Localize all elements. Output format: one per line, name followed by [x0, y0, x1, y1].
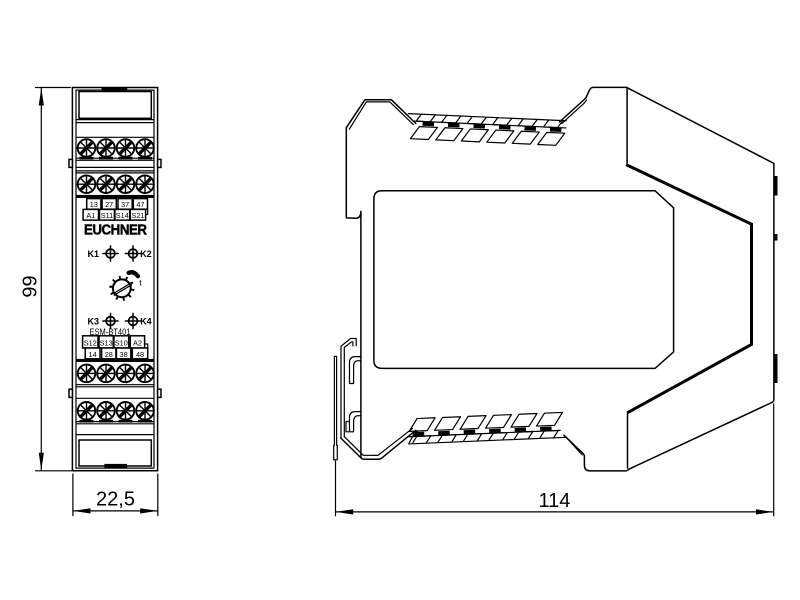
svg-text:S11: S11 [101, 211, 113, 220]
svg-text:S14: S14 [116, 211, 129, 220]
svg-text:99: 99 [19, 275, 41, 297]
svg-text:47: 47 [136, 200, 144, 209]
svg-text:S10: S10 [115, 338, 128, 347]
svg-text:37: 37 [121, 200, 129, 209]
svg-text:K1: K1 [88, 249, 100, 259]
svg-text:EUCHNER: EUCHNER [84, 223, 147, 239]
svg-text:S13: S13 [100, 338, 113, 347]
svg-text:K4: K4 [140, 316, 152, 326]
svg-text:48: 48 [136, 350, 144, 359]
svg-text:K2: K2 [140, 249, 152, 259]
svg-text:114: 114 [539, 490, 571, 512]
svg-text:22,5: 22,5 [96, 489, 135, 511]
svg-text:38: 38 [120, 350, 128, 359]
svg-text:13: 13 [90, 200, 98, 209]
svg-text:K3: K3 [88, 316, 100, 326]
svg-text:28: 28 [105, 350, 113, 359]
svg-text:A2: A2 [133, 338, 142, 347]
svg-text:A1: A1 [86, 211, 95, 220]
svg-text:S12: S12 [84, 338, 97, 347]
svg-text:27: 27 [105, 200, 113, 209]
svg-text:S21: S21 [131, 211, 144, 220]
svg-text:14: 14 [89, 350, 97, 359]
